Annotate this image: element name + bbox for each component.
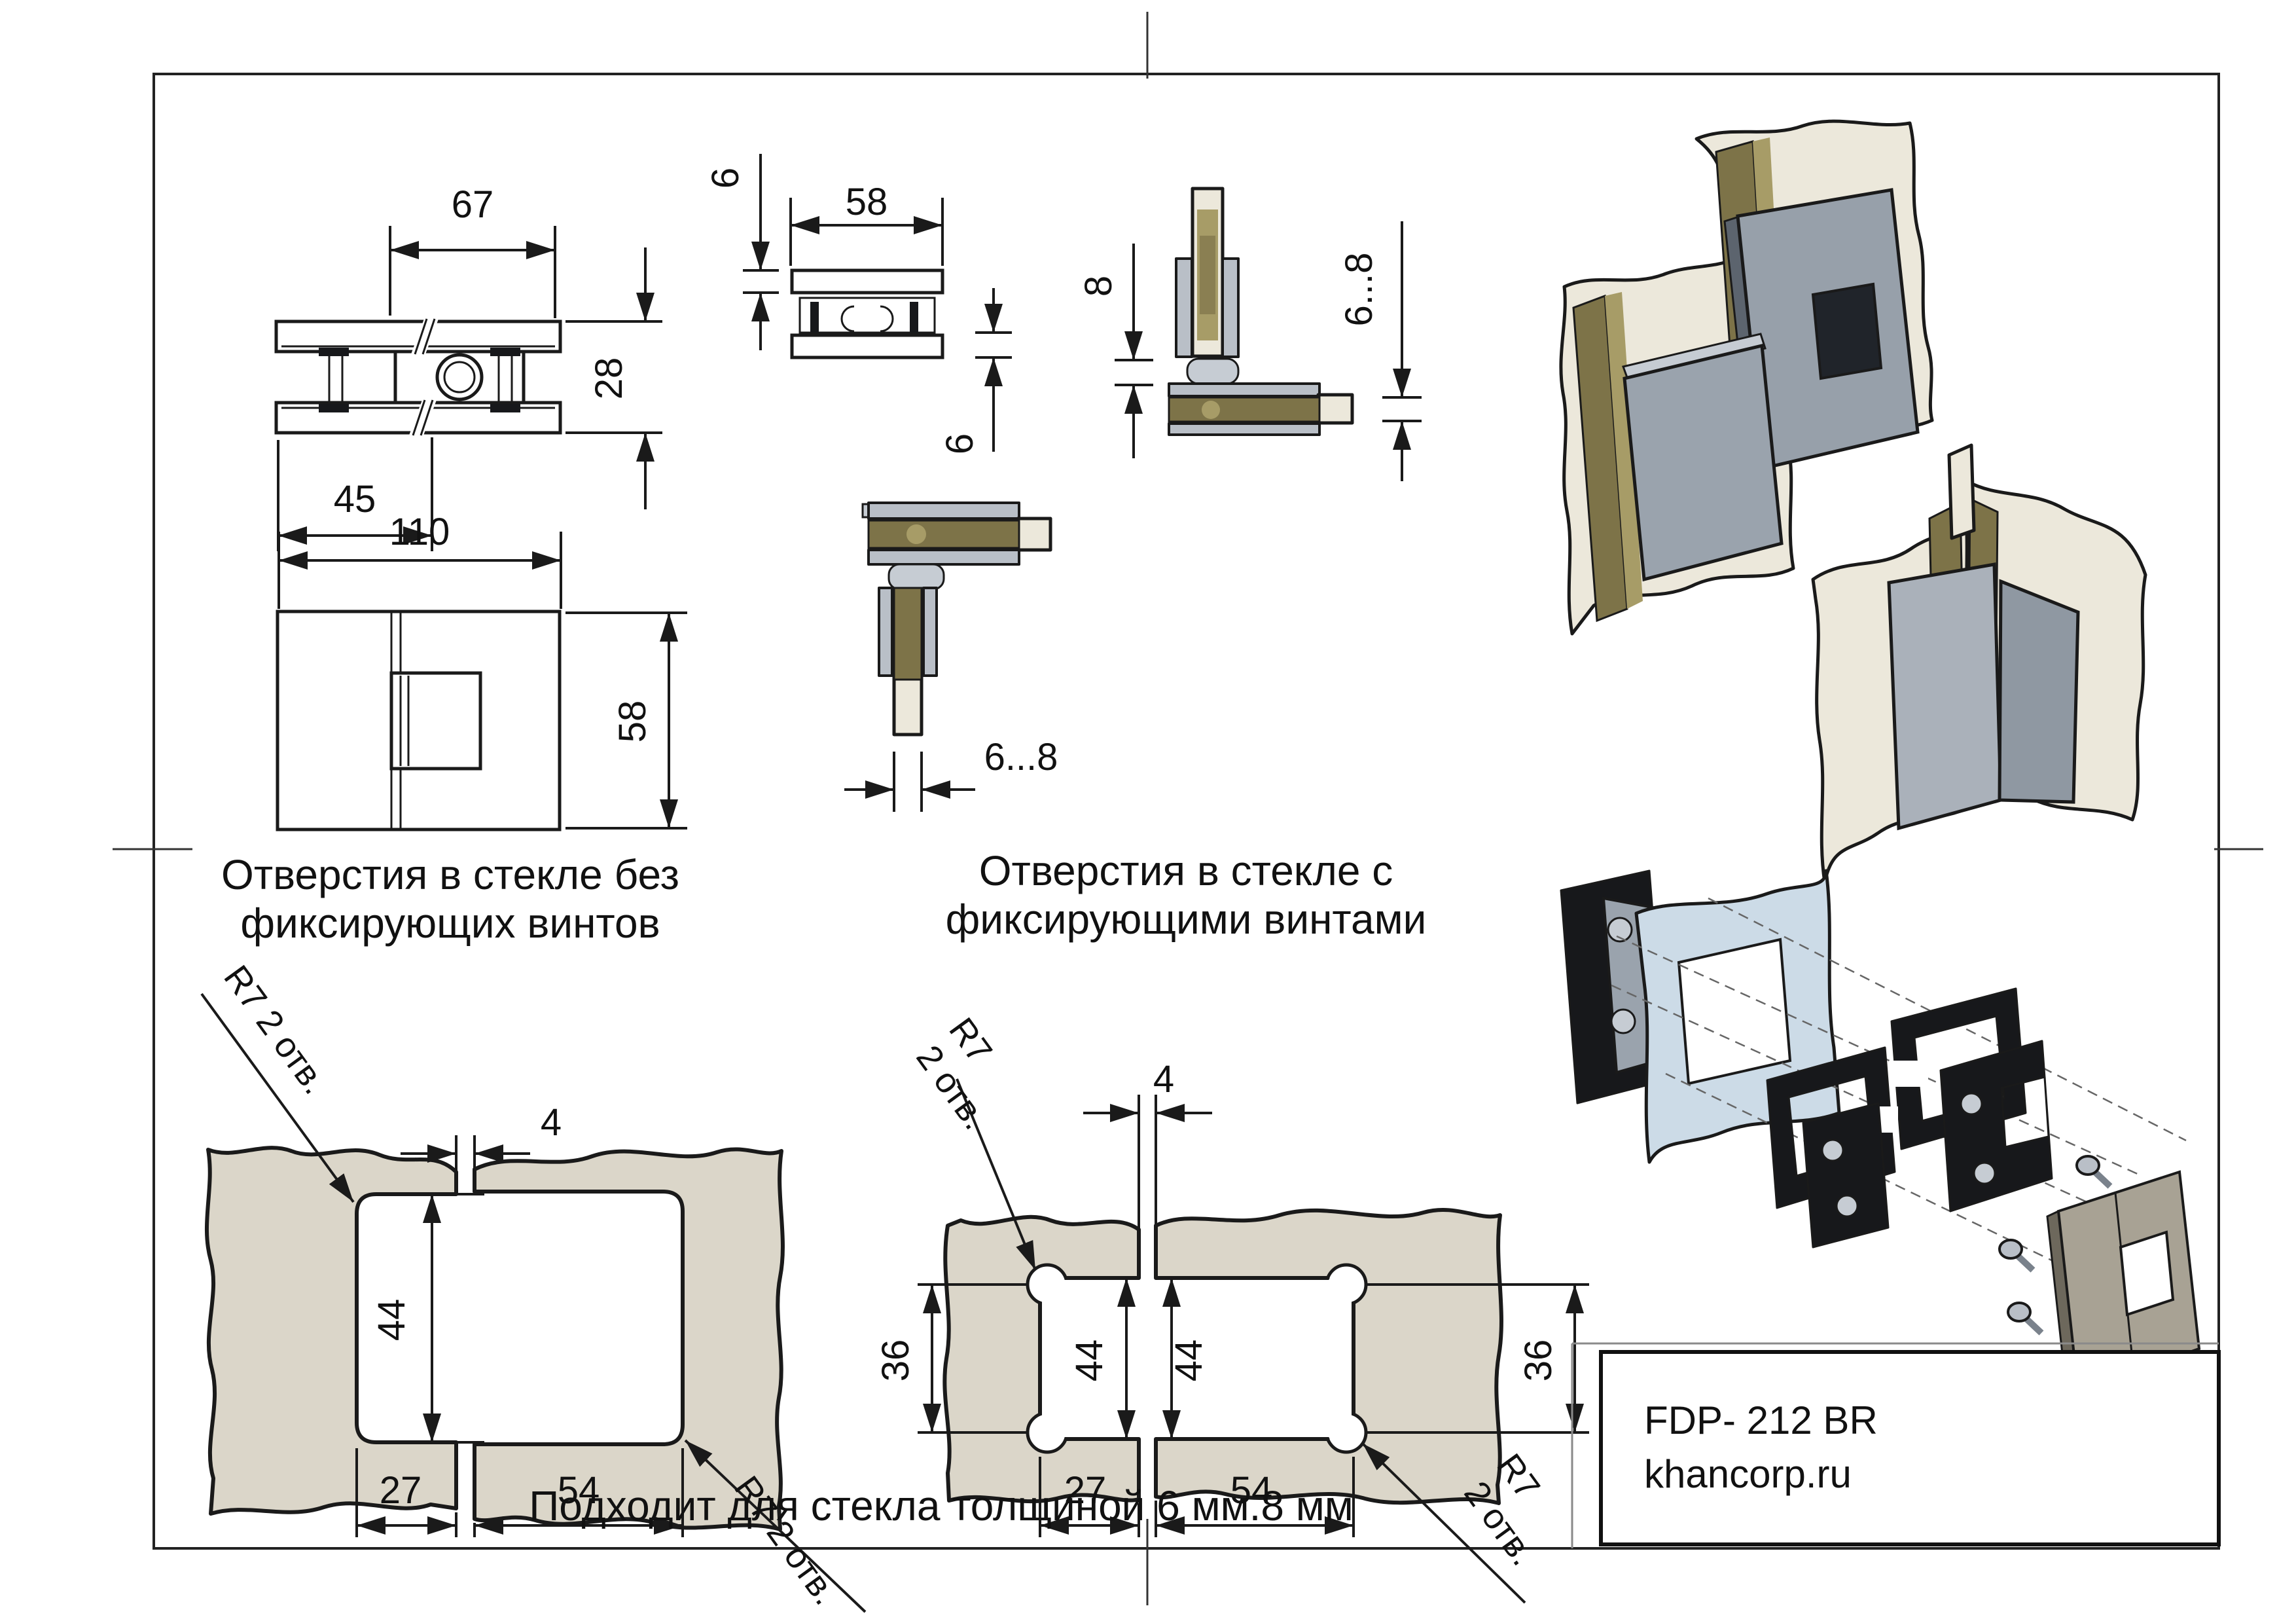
plan-screw-stud xyxy=(319,348,349,356)
dim-pleft-d1: 27 xyxy=(380,1469,422,1512)
plan-screw-stud xyxy=(490,404,520,412)
cplan-glass-end xyxy=(1018,519,1050,550)
dim-front-height: 58 xyxy=(611,701,654,743)
exploded-view xyxy=(1561,871,2199,1396)
side-gasket xyxy=(810,302,819,333)
render-corner-plate-left xyxy=(1889,564,2001,828)
exploded-clamp-plate-2 xyxy=(1941,1041,2052,1211)
corner-vertical-glass-core xyxy=(1200,236,1215,314)
dim-pright-h2: 44 xyxy=(1168,1340,1210,1382)
corner-h-glass-end xyxy=(1318,395,1352,423)
cplan-vplate-right xyxy=(924,588,937,676)
pattern-right-title-2: фиксирующими винтами xyxy=(946,896,1427,943)
dim-side-thickness-top: 6 xyxy=(704,168,747,189)
dim-cplan-glass-thickness: 6...8 xyxy=(984,736,1058,778)
dim-pright-s2: 36 xyxy=(1517,1340,1560,1382)
plan-pivot-inner xyxy=(444,362,475,392)
title-block-website: khancorp.ru xyxy=(1644,1452,1852,1496)
render-hinge-plate-hole xyxy=(1813,284,1881,378)
cplan-knuckle xyxy=(889,564,944,589)
dim-corner-offset: 8 xyxy=(1077,276,1120,297)
dim-corner-glass-thickness: 6...8 xyxy=(1338,253,1380,327)
view-plan-180: 67 28 45 xyxy=(276,183,662,551)
title-block-product-code: FDP- 212 BR xyxy=(1644,1398,1878,1442)
cplan-glass xyxy=(869,520,1019,548)
cplan-top-plate xyxy=(869,503,1019,519)
corner-clamp-plate-left xyxy=(1176,259,1192,357)
corner-h-glass xyxy=(1169,397,1319,422)
label-pleft-r7-top: R7 2 отв. xyxy=(216,958,335,1101)
pattern-left-title-1: Отверстия в стекле без xyxy=(221,851,679,898)
render-corner-glass-cap xyxy=(1949,445,1974,538)
render-inline-hinge xyxy=(1561,121,1932,634)
dim-pleft-height: 44 xyxy=(370,1299,413,1341)
render-corner-plate-right xyxy=(2000,581,2078,802)
plan-screw-stud xyxy=(490,348,520,356)
exploded-glass-cutout xyxy=(1679,939,1790,1084)
title-block: FDP- 212 BR khancorp.ru xyxy=(1572,1343,2219,1548)
exploded-clamp-plate-1 xyxy=(1803,1103,1888,1247)
side-gasket xyxy=(910,302,918,333)
view-front: 110 58 xyxy=(278,511,687,830)
dim-plan-height: 28 xyxy=(588,357,630,400)
render-corner-hinge xyxy=(1813,445,2145,883)
dim-side-width: 58 xyxy=(846,181,888,223)
front-cutout xyxy=(391,673,480,769)
side-top-plate xyxy=(792,270,942,293)
dim-pright-gap: 4 xyxy=(1153,1058,1174,1101)
corner-h-bottom-plate xyxy=(1169,424,1319,435)
corner-knuckle xyxy=(1187,359,1238,384)
title-block-box xyxy=(1601,1352,2219,1544)
pattern-left-glass-a xyxy=(207,1148,456,1514)
plan-screw-stud xyxy=(319,404,349,412)
view-corner-side: 8 6...8 xyxy=(1077,189,1422,481)
plan-hinge-body xyxy=(395,352,524,403)
dim-pleft-gap: 4 xyxy=(541,1101,562,1144)
render-hinge-plate-small xyxy=(1624,346,1782,579)
corner-h-top-plate xyxy=(1169,384,1319,396)
cplan-vglass xyxy=(894,588,922,680)
dim-plan-width: 67 xyxy=(452,183,494,226)
drawing-sheet: 67 28 45 6 58 6 8 6...8 xyxy=(0,0,2296,1623)
exploded-cover-plate-hole xyxy=(2121,1232,2173,1315)
dim-pright-h1: 44 xyxy=(1068,1340,1111,1382)
view-side-180: 6 58 6 xyxy=(704,154,1012,454)
view-corner-plan: 6...8 xyxy=(844,503,1058,812)
pattern-left-glass-b xyxy=(475,1149,783,1529)
side-screw-profile xyxy=(880,306,893,331)
note-glass-thickness: Подходит для стекла толщиной 6 мм.8 мм xyxy=(529,1482,1353,1529)
dim-plan-offset: 45 xyxy=(334,478,376,520)
cad-drawing: 67 28 45 6 58 6 8 6...8 xyxy=(0,0,2296,1623)
cplan-bottom-plate xyxy=(869,550,1019,564)
side-screw-profile xyxy=(842,306,854,331)
cplan-vglass-end xyxy=(894,676,922,735)
side-bottom-plate xyxy=(792,335,942,357)
front-body xyxy=(278,611,560,830)
pattern-left-title-2: фиксирующих винтов xyxy=(240,900,660,947)
dim-pright-s1: 36 xyxy=(874,1340,917,1382)
pattern-right-title-1: Отверстия в стекле с xyxy=(979,847,1393,894)
dim-front-width: 110 xyxy=(389,511,450,553)
cplan-vplate-left xyxy=(879,588,892,676)
corner-clamp-plate-right xyxy=(1223,259,1238,357)
dim-side-thickness-bottom: 6 xyxy=(939,433,981,454)
